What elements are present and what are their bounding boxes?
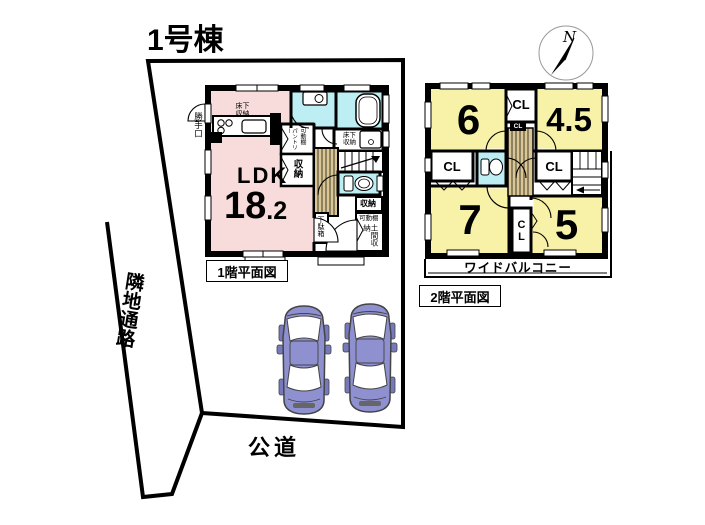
washbasin (360, 131, 381, 148)
closet-right-label: CL (536, 151, 572, 181)
washing-machine-icon (303, 92, 327, 105)
ldk-area-int: 18 (224, 187, 266, 225)
ldk-label: LDK (237, 165, 288, 187)
vanity-underfloor-label: 床下収納 (342, 132, 357, 147)
kitchen-underfloor-label: 床下収納 (234, 103, 251, 119)
floor2-caption: 2階平面図 (419, 285, 501, 307)
toilet-room-1f (338, 172, 380, 195)
room-5-label: 5 (531, 196, 602, 253)
closet-left-label: CL (431, 151, 473, 181)
bathtub (356, 94, 380, 127)
page-title: 1号棟 (147, 26, 224, 56)
room-6-label: 6 (431, 89, 506, 151)
pantry-shelf-label: 可動棚 (299, 127, 305, 151)
car-right (343, 304, 397, 412)
floor-plan-page: 1号棟 N 隣地通路 公道 1階平面図 LDK 18 .2 床下収納 勝手口 パ… (0, 0, 705, 525)
pantry-label: パントリー (285, 128, 296, 152)
public-road-label: 公道 (248, 437, 300, 459)
back-door-label: 勝手口 (194, 112, 203, 150)
ldk-area: 18 .2 (224, 187, 287, 225)
balcony-label: ワイドバルコニー (425, 258, 611, 275)
room-4-5-label: 4.5 (536, 89, 602, 151)
closet-mid-label: CL (512, 208, 531, 253)
toilet-closet-label: 収納 (360, 200, 376, 208)
floor1-caption: 1階平面図 (206, 260, 288, 282)
closet-top-small-label: CL (510, 122, 526, 131)
entry-storage-label: 土間収納 (363, 224, 378, 252)
car-left (277, 306, 331, 414)
room-7-label: 7 (431, 186, 509, 253)
ldk-area-frac: .2 (266, 199, 287, 224)
hall-closet-label: 収納 (292, 159, 302, 183)
compass-north-label: N (563, 30, 576, 45)
entry-shelf-label: 可動棚 (359, 216, 379, 223)
closet-top-label: CL (506, 89, 536, 120)
shoe-cabinet-label: 下駄箱 (317, 216, 324, 242)
floor1-plan (188, 85, 389, 265)
toilet-room-2f (477, 151, 506, 186)
